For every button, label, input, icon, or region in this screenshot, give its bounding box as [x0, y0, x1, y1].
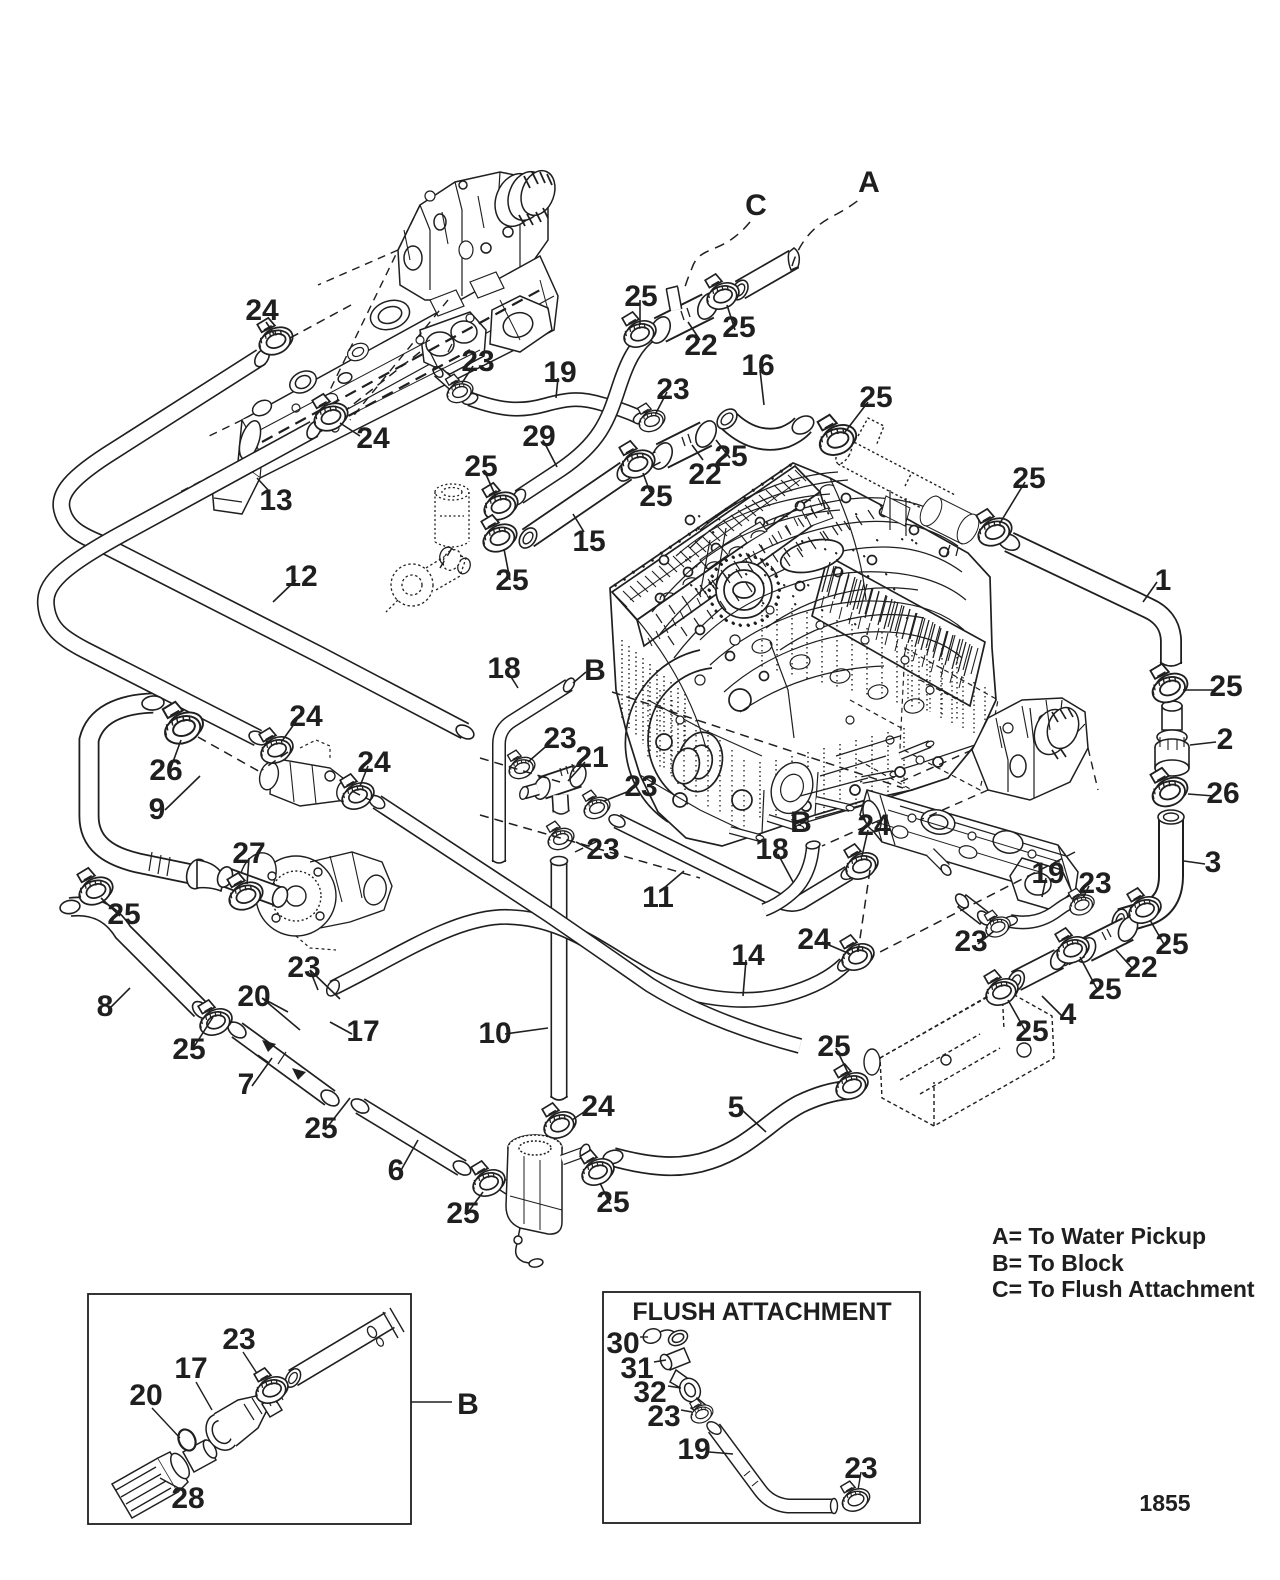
- svg-text:26: 26: [149, 754, 182, 787]
- svg-text:26: 26: [1206, 777, 1239, 810]
- svg-text:6: 6: [388, 1154, 405, 1187]
- svg-text:11: 11: [642, 881, 674, 914]
- svg-text:25: 25: [495, 564, 528, 597]
- svg-text:25: 25: [1015, 1015, 1048, 1048]
- svg-text:18: 18: [755, 833, 788, 866]
- svg-text:B= To Block: B= To Block: [992, 1250, 1124, 1276]
- svg-text:24: 24: [245, 294, 279, 327]
- svg-text:1855: 1855: [1139, 1490, 1190, 1516]
- svg-text:8: 8: [97, 990, 114, 1023]
- svg-text:14: 14: [731, 939, 765, 972]
- svg-text:23: 23: [954, 925, 987, 958]
- svg-text:24: 24: [357, 746, 391, 779]
- svg-text:C= To Flush Attachment: C= To Flush Attachment: [992, 1276, 1255, 1302]
- svg-text:23: 23: [461, 345, 494, 378]
- svg-text:23: 23: [624, 770, 657, 803]
- svg-text:25: 25: [107, 898, 140, 931]
- svg-text:24: 24: [857, 809, 891, 842]
- svg-text:2: 2: [1217, 723, 1234, 756]
- svg-text:16: 16: [741, 349, 774, 382]
- svg-text:B: B: [457, 1388, 479, 1421]
- svg-text:A: A: [858, 166, 880, 199]
- svg-text:22: 22: [1124, 951, 1157, 984]
- svg-text:A= To Water Pickup: A= To Water Pickup: [992, 1223, 1206, 1249]
- svg-text:4: 4: [1060, 998, 1077, 1031]
- svg-text:23: 23: [222, 1323, 255, 1356]
- svg-text:12: 12: [284, 560, 317, 593]
- svg-text:19: 19: [677, 1433, 710, 1466]
- svg-text:21: 21: [575, 741, 608, 774]
- svg-text:20: 20: [129, 1379, 162, 1412]
- svg-text:25: 25: [639, 480, 672, 513]
- svg-text:25: 25: [304, 1112, 337, 1145]
- svg-text:24: 24: [581, 1090, 615, 1123]
- svg-text:25: 25: [859, 381, 892, 414]
- svg-text:17: 17: [174, 1352, 207, 1385]
- svg-text:25: 25: [596, 1186, 629, 1219]
- svg-text:7: 7: [238, 1068, 255, 1101]
- svg-text:3: 3: [1205, 846, 1222, 879]
- svg-text:25: 25: [1155, 928, 1188, 961]
- svg-text:25: 25: [446, 1197, 479, 1230]
- svg-text:24: 24: [356, 422, 390, 455]
- svg-text:23: 23: [656, 373, 689, 406]
- svg-text:22: 22: [684, 329, 717, 362]
- svg-text:17: 17: [346, 1015, 379, 1048]
- svg-text:23: 23: [586, 833, 619, 866]
- svg-text:23: 23: [287, 951, 320, 984]
- svg-text:25: 25: [464, 450, 497, 483]
- svg-text:25: 25: [1209, 670, 1242, 703]
- svg-text:10: 10: [478, 1017, 511, 1050]
- svg-text:23: 23: [543, 722, 576, 755]
- svg-text:25: 25: [172, 1033, 205, 1066]
- svg-text:25: 25: [624, 280, 657, 313]
- svg-text:19: 19: [543, 356, 576, 389]
- svg-text:25: 25: [1088, 973, 1121, 1006]
- svg-text:28: 28: [171, 1482, 204, 1515]
- svg-text:B: B: [790, 806, 812, 839]
- svg-text:22: 22: [688, 458, 721, 491]
- svg-text:29: 29: [522, 420, 555, 453]
- svg-text:13: 13: [259, 484, 292, 517]
- svg-text:25: 25: [817, 1030, 850, 1063]
- svg-text:25: 25: [722, 311, 755, 344]
- svg-text:15: 15: [572, 525, 605, 558]
- svg-text:25: 25: [1012, 462, 1045, 495]
- svg-text:19: 19: [1031, 857, 1064, 890]
- svg-text:1: 1: [1155, 564, 1172, 597]
- svg-text:FLUSH ATTACHMENT: FLUSH ATTACHMENT: [632, 1298, 891, 1326]
- svg-text:C: C: [745, 189, 767, 222]
- svg-text:23: 23: [647, 1400, 680, 1433]
- svg-text:24: 24: [797, 923, 831, 956]
- svg-text:18: 18: [487, 652, 520, 685]
- svg-text:B: B: [584, 654, 606, 687]
- svg-text:23: 23: [1078, 867, 1111, 900]
- svg-text:5: 5: [728, 1091, 745, 1124]
- svg-text:24: 24: [289, 700, 323, 733]
- svg-text:23: 23: [844, 1452, 877, 1485]
- svg-text:20: 20: [237, 980, 270, 1013]
- svg-text:9: 9: [149, 793, 166, 826]
- svg-text:27: 27: [232, 837, 265, 870]
